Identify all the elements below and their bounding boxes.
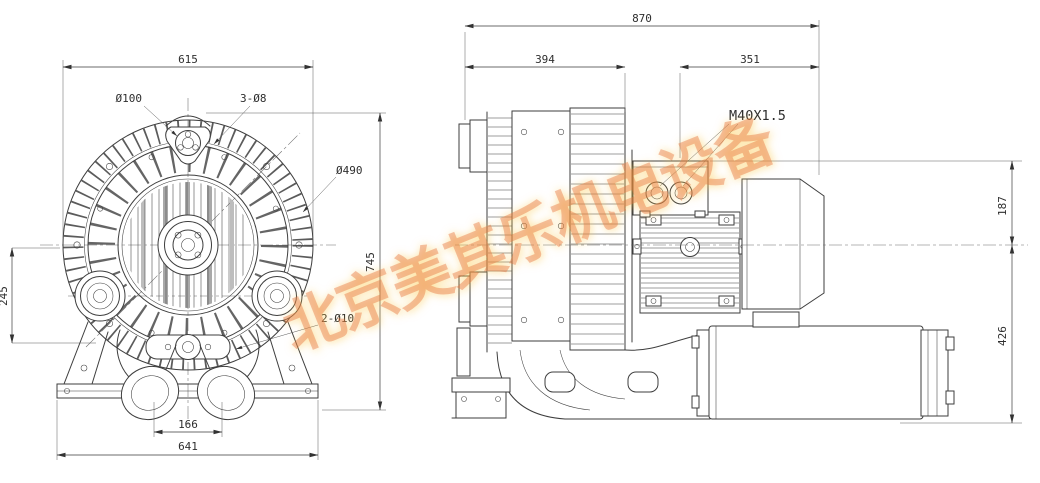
- inlet-flanges: [452, 120, 510, 418]
- front-view: [40, 98, 336, 429]
- blower-technical-drawing: 615 Ø100 3-Ø8 Ø490 745 245 166: [0, 0, 1040, 483]
- dim-base-holes: 2-Ø10: [236, 312, 354, 349]
- dim-615-label: 615: [178, 53, 198, 66]
- dim-394-label: 394: [535, 53, 555, 66]
- cover-plate: [512, 111, 570, 341]
- dim-870-label: 870: [632, 12, 652, 25]
- dim-351-label: 351: [740, 53, 760, 66]
- dim-housing-dia: Ø490: [303, 164, 363, 212]
- front-fin-section: [487, 112, 512, 352]
- drawing-canvas: 615 Ø100 3-Ø8 Ø490 745 245 166: [0, 0, 1040, 483]
- dim-d490-label: Ø490: [336, 164, 363, 177]
- dim-d100-label: Ø100: [116, 92, 143, 105]
- dim-187-label: 187: [996, 196, 1009, 216]
- dim-426-label: 426: [996, 326, 1009, 346]
- muffler: [692, 326, 954, 419]
- hub: [158, 215, 218, 275]
- dim-394: 394: [465, 53, 625, 112]
- dim-2d10-label: 2-Ø10: [321, 312, 354, 325]
- dim-m40-label: M40X1.5: [729, 108, 786, 124]
- dim-166-label: 166: [178, 418, 198, 431]
- terminal-box: [633, 161, 708, 217]
- dim-245-label: 245: [0, 286, 10, 306]
- side-view: [452, 108, 1028, 419]
- dim-745-label: 745: [364, 252, 377, 272]
- bottom-bracket: [146, 335, 230, 360]
- housing-fin-section: [570, 108, 632, 350]
- dim-351: 351: [680, 53, 819, 158]
- elbow-duct: [497, 334, 710, 419]
- fan-cowl: [742, 179, 824, 309]
- dim-3d8-label: 3-Ø8: [240, 92, 267, 105]
- dim-641-label: 641: [178, 440, 198, 453]
